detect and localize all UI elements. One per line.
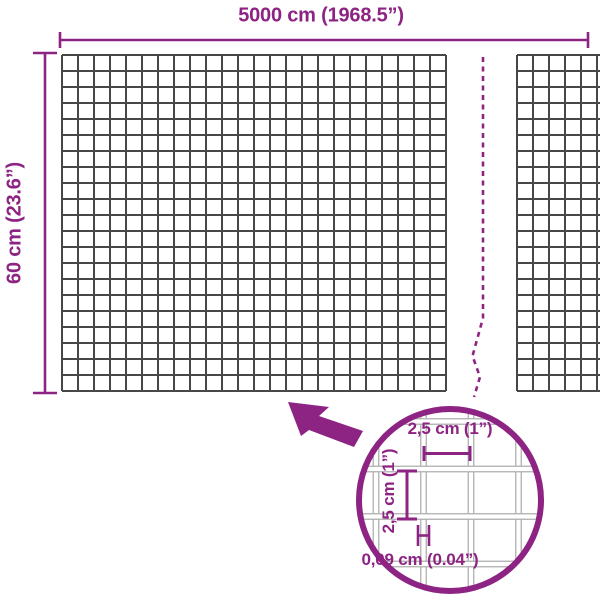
wire-mesh-grid <box>62 55 600 391</box>
width-dimension-label: 5000 cm (1968.5”) <box>238 5 404 28</box>
mesh-diagram-graphics <box>0 0 600 600</box>
product-dimension-diagram: 5000 cm (1968.5”) 60 cm (23.6”) 2,5 cm (… <box>0 0 600 600</box>
detail-wire-thickness-label: 0,09 cm (0.04”) <box>361 550 478 570</box>
height-dimension-label: 60 cm (23.6”) <box>4 162 27 284</box>
height-dimension-line <box>33 53 57 393</box>
magnifier-arrow-icon <box>288 402 363 447</box>
width-dimension-line <box>60 32 588 48</box>
break-line-dashed <box>473 57 484 397</box>
detail-cell-height-label: 2,5 cm (1”) <box>379 449 399 534</box>
detail-cell-width-label: 2,5 cm (1”) <box>408 419 493 439</box>
